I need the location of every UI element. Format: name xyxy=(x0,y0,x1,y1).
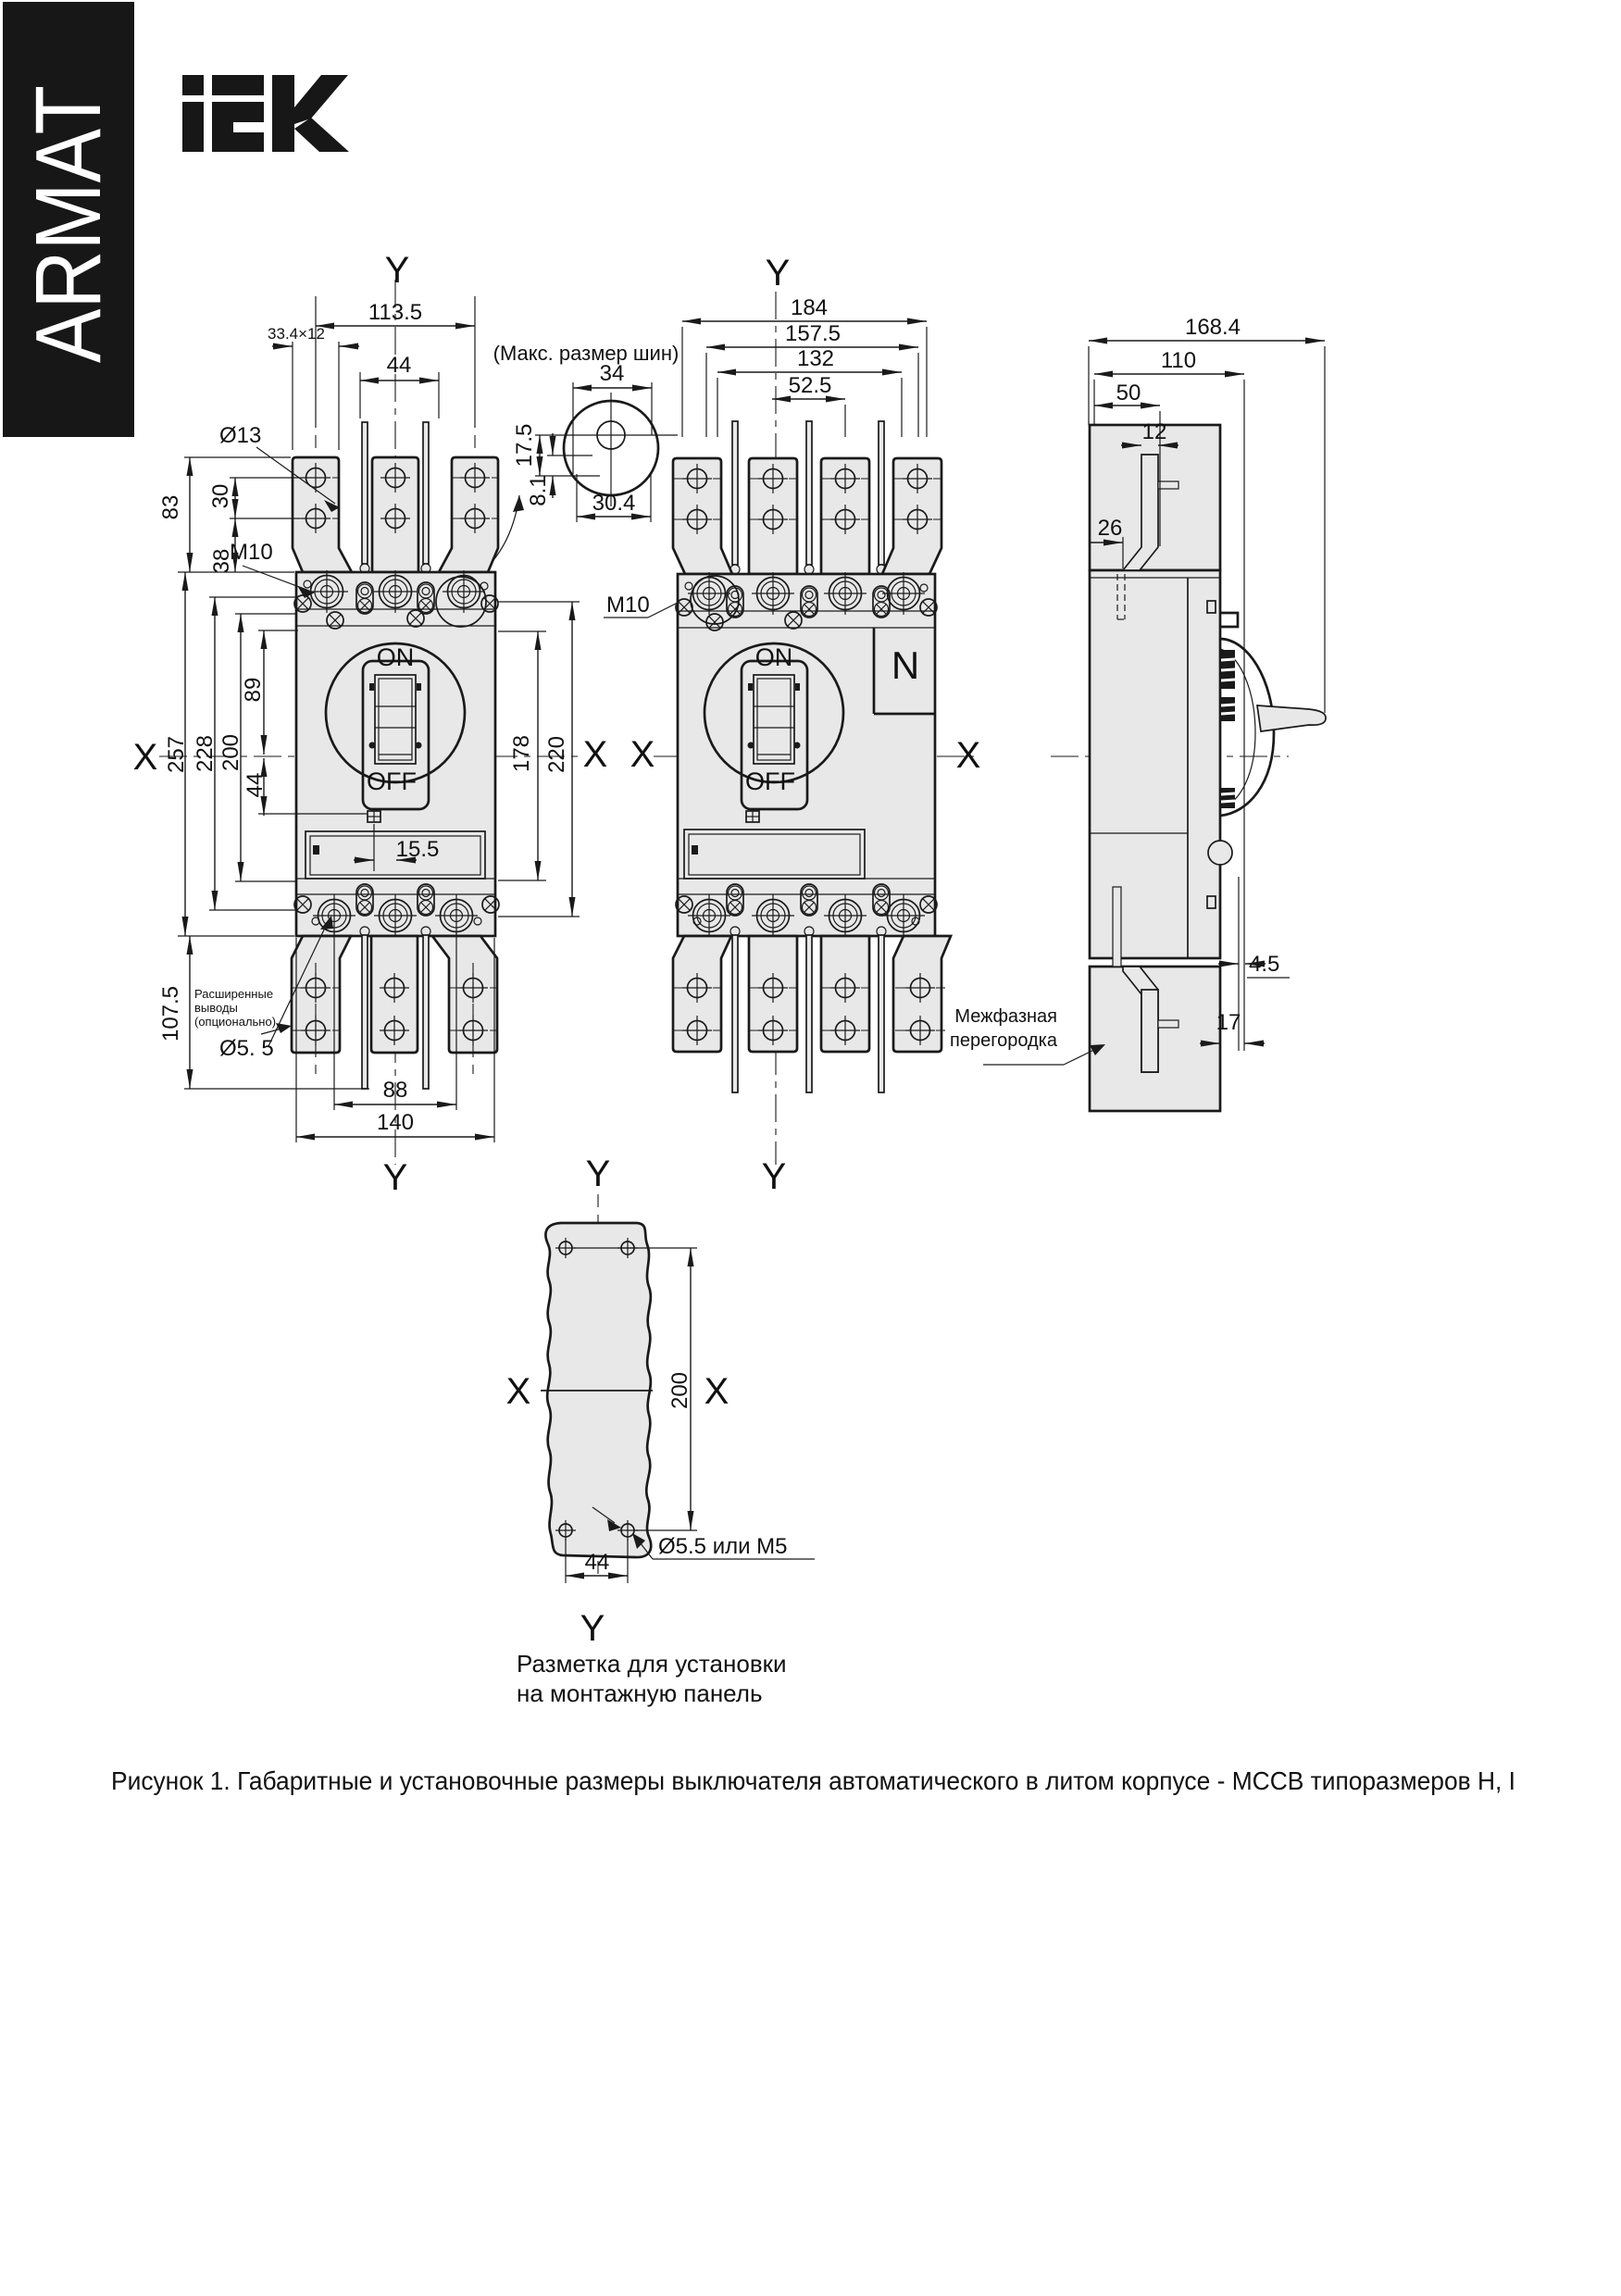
svg-text:Ø5.5 или М5: Ø5.5 или М5 xyxy=(658,1534,788,1559)
svg-text:88: 88 xyxy=(383,1078,408,1103)
svg-text:Расширенные: Расширенные xyxy=(194,987,273,1001)
svg-text:30.4: 30.4 xyxy=(592,491,636,516)
svg-text:X: X xyxy=(583,734,608,775)
svg-text:200: 200 xyxy=(218,734,243,771)
svg-text:X: X xyxy=(705,1371,729,1412)
svg-text:107.5: 107.5 xyxy=(158,986,183,1042)
svg-text:157.5: 157.5 xyxy=(785,321,841,346)
svg-text:8.1: 8.1 xyxy=(526,475,551,505)
svg-text:184: 184 xyxy=(791,295,828,320)
svg-text:Y: Y xyxy=(383,1157,408,1198)
svg-text:200: 200 xyxy=(667,1372,692,1409)
svg-text:N: N xyxy=(892,643,919,687)
svg-text:X: X xyxy=(630,734,655,775)
svg-text:(Макс. размер шин): (Макс. размер шин) xyxy=(493,342,680,365)
svg-text:Y: Y xyxy=(580,1608,605,1649)
svg-text:38: 38 xyxy=(209,549,234,574)
svg-text:Y: Y xyxy=(762,1156,787,1197)
svg-text:Y: Y xyxy=(766,253,791,293)
svg-text:Y: Y xyxy=(586,1154,611,1194)
svg-text:выводы: выводы xyxy=(194,1001,238,1015)
svg-text:26: 26 xyxy=(1098,516,1123,541)
svg-text:89: 89 xyxy=(241,678,266,703)
svg-text:113.5: 113.5 xyxy=(368,300,422,325)
svg-text:12: 12 xyxy=(1142,419,1167,444)
svg-text:50: 50 xyxy=(1116,381,1141,406)
svg-text:Рисунок 1. Габаритные и устано: Рисунок 1. Габаритные и установочные раз… xyxy=(111,1766,1515,1795)
svg-text:M10: M10 xyxy=(606,593,650,618)
svg-text:Разметка для установки: Разметка для установки xyxy=(517,1650,787,1678)
svg-text:X: X xyxy=(506,1371,531,1412)
svg-text:ARMAT: ARMAT xyxy=(17,85,120,363)
svg-text:OFF: OFF xyxy=(745,767,795,795)
svg-text:34: 34 xyxy=(600,361,625,386)
svg-text:178: 178 xyxy=(509,735,534,772)
svg-text:17.5: 17.5 xyxy=(512,424,537,468)
svg-text:33.4×12: 33.4×12 xyxy=(268,325,325,343)
svg-text:Ø5. 5: Ø5. 5 xyxy=(219,1036,274,1061)
svg-text:110: 110 xyxy=(1161,348,1196,373)
svg-text:X: X xyxy=(133,737,158,778)
svg-text:M10: M10 xyxy=(230,540,273,565)
svg-text:30: 30 xyxy=(208,484,233,509)
svg-text:44: 44 xyxy=(387,353,412,378)
svg-text:Y: Y xyxy=(385,250,410,291)
svg-text:168.4: 168.4 xyxy=(1185,315,1241,340)
svg-text:X: X xyxy=(956,735,981,776)
svg-text:220: 220 xyxy=(544,736,569,773)
svg-text:ON: ON xyxy=(755,643,793,671)
svg-text:перегородка: перегородка xyxy=(950,1030,1058,1051)
svg-text:52.5: 52.5 xyxy=(789,373,832,398)
svg-text:(опционально): (опционально) xyxy=(194,1015,276,1029)
svg-text:Межфазная: Межфазная xyxy=(954,1006,1057,1027)
svg-text:15.5: 15.5 xyxy=(396,837,440,862)
svg-text:ON: ON xyxy=(377,643,415,671)
svg-text:83: 83 xyxy=(158,495,183,520)
svg-text:44: 44 xyxy=(585,1550,610,1575)
svg-text:на монтажную панель: на монтажную панель xyxy=(517,1679,763,1707)
svg-text:132: 132 xyxy=(797,346,834,371)
svg-text:Ø13: Ø13 xyxy=(219,423,261,448)
svg-text:228: 228 xyxy=(193,735,218,772)
svg-text:OFF: OFF xyxy=(367,767,417,795)
svg-text:140: 140 xyxy=(377,1110,414,1135)
